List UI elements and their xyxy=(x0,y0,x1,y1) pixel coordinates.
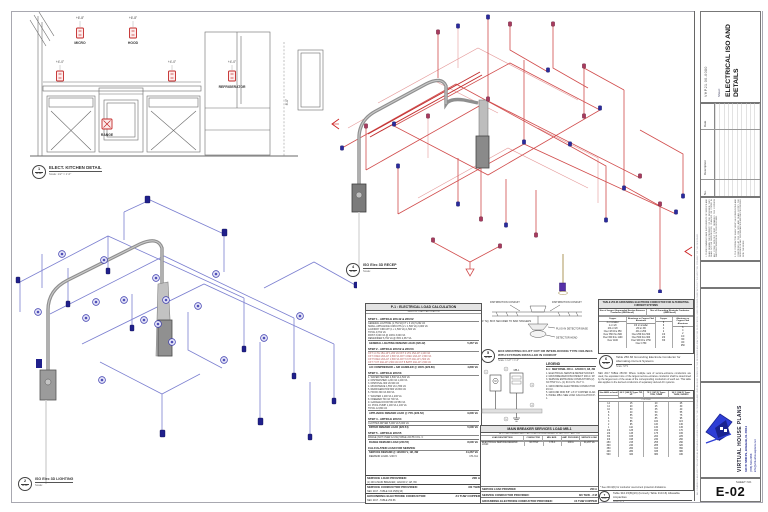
dim-label: +4'-0" xyxy=(228,60,236,64)
kitchen-caption: 1 E-02 ELECT. KITCHEN DETAIL Scale: 1/2"… xyxy=(32,165,162,179)
detector-caption: 5 E-02 BOX MOUNTING IN LIFT OUT OR INTER… xyxy=(481,349,597,363)
service-riser-drawing: M MB-1 123 45 xyxy=(480,365,544,423)
view-scale: Scale: xyxy=(35,483,73,487)
gec-value: #4 THW COPPER xyxy=(455,494,480,498)
grounding-table: TABLE 250.66 GROUNDING ELECTRODE CONDUCT… xyxy=(598,299,694,354)
amp-value: 171.9 A xyxy=(469,455,478,458)
disclaimer-2: 2. THE CONTRACTOR SHALL VERIFY ALL DIMEN… xyxy=(735,199,745,257)
detector-mounting-drawing: DISTRIBUTION CONDUIT DISTRIBUTION CONDUI… xyxy=(480,252,597,348)
mb-total-label: SERVICE LOAD PROVIDED xyxy=(482,488,516,491)
distribution-conduit-label: DISTRIBUTION CONDUIT xyxy=(490,301,520,304)
col-header: Aluminum or Copper-Clad Aluminum xyxy=(627,317,654,324)
callout-sheet: E-02 xyxy=(22,485,27,488)
mb-col-header: MIN. BKR. xyxy=(543,436,561,441)
mb-cell: 175 A xyxy=(543,442,562,446)
col-header: Aluminum or Copper-Clad Aluminum xyxy=(673,317,693,327)
micro-label: MICRO xyxy=(74,41,86,45)
company-phone: (786) 530-2958 xyxy=(750,384,753,472)
logo-section: VIRTUAL HOUSE PLANS 340 W 72ND PL, HIALE… xyxy=(700,381,761,479)
company-name: VIRTUAL HOUSE PLANS xyxy=(737,384,743,472)
col-values: 15 20 30 40 55 70 85 95 110 125 145 165 … xyxy=(619,402,643,457)
step4-total-value: 5,000 VA xyxy=(467,426,478,429)
box-note: 4" SQ. BOX SECURED TO BAR HANGERS xyxy=(482,320,531,323)
mb-col-header: AMP. PROVIDED xyxy=(562,436,580,441)
lighting-iso-caption: 2 E-02 ISO Elec 3D LIGHTING Scale: xyxy=(18,477,128,491)
load-calc-title: P-1 : ELECTRICAL LOAD CALCULATION xyxy=(366,304,481,311)
detector-base-label: PLUG-IN DETECTOR BASE xyxy=(556,328,588,331)
recep-iso-caption: 4 E-02 ISO Elec 3D RECEP Scale: xyxy=(346,263,456,277)
revision-no-header: No. xyxy=(703,179,707,195)
drawing-sheet: +6'-8" +6'-8" +4'-0" +4'-0" +4'-0" 8'-0"… xyxy=(0,0,768,512)
view-scale: Scale: NTS xyxy=(616,365,692,368)
detail-callout-icon: 2 E-02 xyxy=(18,477,32,491)
distribution-conduit-label: DISTRIBUTION CONDUIT xyxy=(552,301,582,304)
service-load-label: SERVICE LOAD PROVIDED: xyxy=(367,476,407,480)
gec-label: GROUNDING ELECTRODE CONDUCTOR: xyxy=(367,494,426,498)
amp-label: DEMAND LOAD / 240 V xyxy=(369,455,397,458)
mb-title: MAIN BREAKER SERVICES LOAD MB-1 xyxy=(481,426,598,433)
company-email: info@virtualhouseplans.net xyxy=(754,384,757,472)
mb-total-value: 200 A xyxy=(590,488,597,491)
col-header: 60°C (140°F) Types TW, UF xyxy=(619,391,643,398)
grounding-notes: NEC 2017 TABLE 250.66: Where multiple se… xyxy=(598,372,691,385)
height-dim-label: 8'-0" xyxy=(285,99,289,105)
range-label: RANGE xyxy=(101,133,114,137)
step1-total-value: 5,367 VA xyxy=(467,342,478,345)
meter-socket xyxy=(490,375,501,391)
col-values: 8 6 4 2 1/0 2/0 3/0 xyxy=(656,322,672,344)
hood-label: HOOD xyxy=(128,41,139,45)
grounding-group2: Size of Grounding Electrode Conductor (A… xyxy=(647,309,694,316)
sheet-number-box: SHEET NO. E-02 xyxy=(700,477,761,502)
sheet-label: Sheet: xyxy=(717,15,721,97)
col-values: 25 30 40 55 75 95 115 130 145 170 195 22… xyxy=(669,402,693,457)
light-fixture-symbols xyxy=(16,196,357,440)
seal-box xyxy=(700,260,761,289)
company-address: 340 W 72ND PL, HIALEAH, FL 33014 xyxy=(745,384,748,472)
mb-table: MAIN BREAKER SERVICES LOAD MB-1 ALL LOAD… xyxy=(480,425,599,504)
detail-callout-icon: 1 E-02 xyxy=(32,165,46,179)
step1-total-label: GENERAL LIGHTING DEMAND LOAD (220.42) xyxy=(369,342,425,345)
revision-table xyxy=(700,102,761,198)
dim-label: +4'-0" xyxy=(56,60,64,64)
col-header: 90°C (194°F) Types THHN, XHHW-2 xyxy=(669,391,693,398)
mb-col-header: LOAD DESCRIPTION xyxy=(481,436,523,441)
dim-label: +6'-8" xyxy=(129,16,137,20)
callout-sheet: E-02 xyxy=(602,498,606,500)
revision-arrow-icon xyxy=(684,246,693,257)
legend-notes: 1. ELECTRICAL SERVICE METER SOCKET. 2. M… xyxy=(546,372,596,400)
step3-lines: 1. WATER HEATER 4,500 VA 4,500 VA 2. DIS… xyxy=(368,376,479,410)
mb-cell: ELECTRICAL SERVICE DEMAND LOAD xyxy=(481,442,524,446)
panel-box xyxy=(476,136,489,168)
view-title: Table 250.66 Grounding Electrode Conduct… xyxy=(616,355,692,365)
panel-label: MB-1 xyxy=(514,369,520,372)
callout-sheet: E-02 xyxy=(36,173,41,176)
legend-block: LEGEND E-1 : NEW PANEL 200 A - 120/240 V… xyxy=(546,362,596,420)
step2-lines: CKT 1 LTG 15A-1P 1,200 VA CKT 2 LTG 15A-… xyxy=(368,352,479,365)
mb-col-header: CONDUCTOR xyxy=(524,436,542,441)
mb-cell: 200 A xyxy=(561,442,580,446)
mb-col-header: SERVICE LOAD xyxy=(580,436,598,441)
col-values: 20 25 35 50 65 85 100 115 130 150 175 20… xyxy=(644,402,668,457)
sheet-title: ELECTRICAL ISO AND DETAILS xyxy=(725,17,741,97)
disclaimer-1: 1. THESE DRAWINGS ARE INSTRUMENTS OF SER… xyxy=(706,199,719,257)
detail-callout-icon: 5 E-02 xyxy=(481,349,495,363)
load-calc-panel: P-1 : ELECTRICAL LOAD CALCULATION SERVIC… xyxy=(365,303,482,504)
signature-box xyxy=(700,287,761,383)
mb-cell: 41,267 VA xyxy=(580,442,599,446)
callout-sheet: E-02 xyxy=(485,357,490,360)
col-values: 6 4 2 1/0 3/0 4/0 250 xyxy=(673,327,693,349)
ampacity-footnote: * See 240.4(D) for conductor overcurrent… xyxy=(600,486,666,489)
project-code: VHP21.00-0080 xyxy=(704,15,708,97)
step3-total-value: 9,600 VA xyxy=(467,412,478,415)
view-title: Table 310.15(B)(16) (formerly Table 310.… xyxy=(613,491,692,501)
dim-label: +4'-0" xyxy=(168,60,176,64)
sheet-number: E-02 xyxy=(701,484,760,499)
conductor-label: SERVICE CONDUCTOR PROVIDED: xyxy=(367,485,418,489)
junction-box xyxy=(36,359,42,368)
gec-note: NEC 2017 - TABLE 250.66 xyxy=(366,499,481,503)
mb-r1-value: 3/0 THW - 2 M xyxy=(579,493,597,497)
legend-panel-line: E-1 : NEW PANEL 200 A - 120/240 V, 1Ø, 3… xyxy=(546,368,596,371)
revision-rows xyxy=(714,103,760,197)
service-load-value: 200 A xyxy=(472,476,480,480)
ampacity-table: Size AWG or kcmil 60°C (140°F) Types TW,… xyxy=(598,390,694,491)
view-scale: Scale: NTS xyxy=(613,501,692,503)
refrigerator-label: REFRIGERATOR xyxy=(219,85,246,89)
title-block: ALL DRAWINGS AND WRITTEN MATERIAL APPEAR… xyxy=(694,11,762,501)
col-values: 2 or smaller 1 or 1/0 2/0 or 3/0 Over 3/… xyxy=(599,322,626,344)
copyright-strip: ALL DRAWINGS AND WRITTEN MATERIAL APPEAR… xyxy=(697,25,699,495)
step1-lines: GENERAL LIGHTING (1,754 SQ FT x 3 VA) 5,… xyxy=(368,322,479,341)
ampacity-caption: 7 E-02 Table 310.15(B)(16) (formerly Tab… xyxy=(599,491,692,503)
col-values: 1/0 or smaller 2/0 or 3/0 4/0 or 250 Ove… xyxy=(627,324,654,346)
step2-total-label: A/C COMPRESSOR + AIR HANDLER @ 100% (220… xyxy=(369,366,435,369)
revision-date-header: Date xyxy=(703,103,707,127)
step2-total-value: 4,800 VA xyxy=(467,366,478,369)
detail-callout-icon: 7 E-02 xyxy=(599,491,610,502)
view-scale: Scale: xyxy=(363,269,397,273)
lighting-iso-drawing xyxy=(12,192,357,492)
meter-label: M xyxy=(495,380,497,383)
view-scale: Scale: 1/2" = 1'-0" xyxy=(49,172,102,176)
detector-head-label: DETECTOR HEAD xyxy=(556,337,578,340)
step3-total-label: APPLIANCE DEMAND LOAD @ 75% (220.53) xyxy=(369,412,424,415)
col-header: Size AWG or kcmil xyxy=(599,391,618,396)
view-title: BOX MOUNTING IN LIFT OUT OR INTERLOCKING… xyxy=(498,349,597,359)
legend-title: LEGEND xyxy=(546,362,596,367)
step5-total-value: 8,000 VA xyxy=(467,441,478,444)
detail-callout-icon: 6 E-02 xyxy=(599,355,613,369)
callout-sheet: E-02 xyxy=(603,363,608,366)
dim-label: +6'-8" xyxy=(76,16,84,20)
conductor-value: 3/0 THW xyxy=(468,485,480,489)
recep-iso-drawing xyxy=(338,8,693,293)
grounding-caption: 6 E-02 Table 250.66 Grounding Electrode … xyxy=(599,355,692,369)
mb-r2-value: #4 THW COPPER xyxy=(574,499,597,503)
detector-drop xyxy=(560,283,566,291)
grounding-title: TABLE 250.66 GROUNDING ELECTRODE CONDUCT… xyxy=(599,300,693,309)
kitchen-elevation-drawing: +6'-8" +6'-8" +4'-0" +4'-0" +4'-0" 8'-0"… xyxy=(28,12,328,164)
mb-cell: 3/0 THW xyxy=(524,442,543,446)
step4-total-label: DRYER DEMAND LOAD (220.54) xyxy=(369,426,409,429)
grounding-group1: Size of Largest Ungrounded Service-Entra… xyxy=(599,309,646,316)
col-header: 75°C (167°F) Types THW, THWN xyxy=(644,391,668,398)
mb-r2-label: GROUNDING ELECTRODE CONDUCTOR PROVIDED: xyxy=(482,499,553,503)
company-logo-icon xyxy=(704,410,734,448)
col-values: 14 12 10 8 6 4 3 2 1 1/0 2/0 3/0 4/0 250… xyxy=(599,402,618,457)
mb-r1-label: SERVICE CONDUCTOR PROVIDED: xyxy=(482,493,529,497)
calc-total-value: 41,267 VA xyxy=(466,451,478,454)
step5-total-label: RANGE DEMAND LOAD (220.55) xyxy=(369,441,409,444)
calc-total-label: SERVICE DEMAND @ 120/240 V, 1Ø, 3W xyxy=(369,451,418,454)
revision-description-header: Description xyxy=(703,129,707,175)
